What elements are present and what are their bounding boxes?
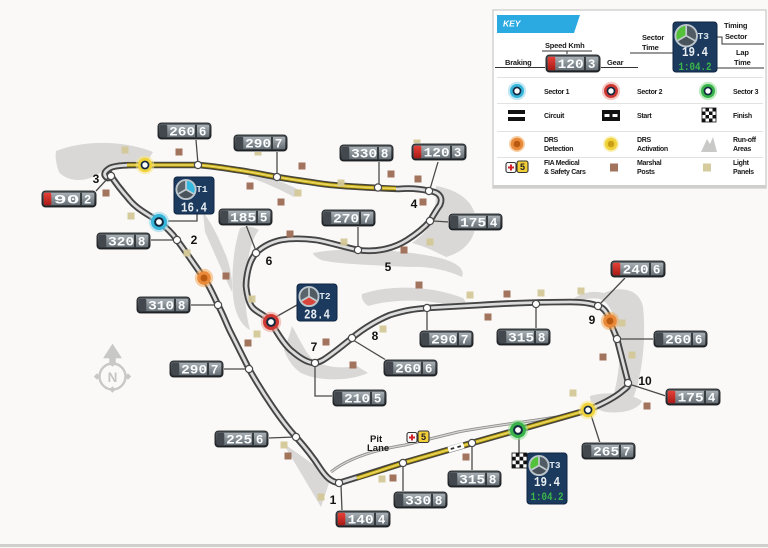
svg-text:6: 6 [256,433,264,447]
svg-text:4: 4 [411,197,418,211]
svg-text:7: 7 [461,333,469,347]
svg-text:7: 7 [211,363,219,377]
svg-text:Lap: Lap [736,48,749,57]
svg-text:225: 225 [226,433,252,447]
svg-text:260: 260 [395,362,421,376]
svg-text:& Safety Cars: & Safety Cars [544,169,586,176]
svg-text:1: 1 [330,493,337,507]
svg-text:3: 3 [588,58,596,72]
svg-text:4: 4 [378,513,386,527]
svg-text:320: 320 [108,235,134,249]
svg-text:5: 5 [421,432,426,442]
svg-text:175: 175 [678,391,704,405]
svg-text:Detection: Detection [544,146,573,153]
svg-text:6: 6 [425,362,433,376]
svg-text:265: 265 [593,445,619,459]
svg-text:Posts: Posts [637,169,655,176]
svg-text:210: 210 [344,392,370,406]
svg-text:8: 8 [489,473,497,487]
svg-text:8: 8 [178,299,186,313]
svg-text:1:04.2: 1:04.2 [531,492,564,504]
svg-text:315: 315 [508,331,534,345]
svg-text:2: 2 [84,193,92,207]
svg-text:290: 290 [431,333,457,347]
svg-text:Start: Start [637,113,652,120]
svg-text:T3: T3 [698,31,710,42]
svg-text:90: 90 [54,193,80,207]
svg-text:Sector: Sector [725,32,747,41]
svg-text:4: 4 [708,391,716,405]
svg-text:4: 4 [490,216,498,230]
svg-text:19.4: 19.4 [534,476,560,491]
svg-text:Sector: Sector [642,33,664,42]
svg-text:7: 7 [311,340,318,354]
svg-text:Braking: Braking [505,58,532,67]
svg-text:1:04.2: 1:04.2 [679,62,712,74]
svg-text:T1: T1 [196,184,208,195]
svg-text:Marshal: Marshal [637,160,662,167]
svg-text:8: 8 [381,147,389,161]
svg-text:DRS: DRS [544,137,559,144]
svg-text:290: 290 [181,363,207,377]
svg-text:T2: T2 [319,291,331,302]
svg-text:Gear: Gear [607,58,624,67]
svg-text:140: 140 [348,513,374,527]
svg-text:19.4: 19.4 [682,46,708,61]
svg-text:330: 330 [405,494,431,508]
svg-text:240: 240 [623,263,649,277]
svg-text:260: 260 [665,333,691,347]
svg-text:2: 2 [191,233,198,247]
svg-text:T3: T3 [549,460,561,471]
svg-text:7: 7 [363,212,371,226]
svg-text:Lane: Lane [367,443,389,454]
svg-text:16.4: 16.4 [181,202,207,217]
svg-text:7: 7 [623,445,631,459]
svg-text:Time: Time [642,43,659,52]
svg-text:6: 6 [653,263,661,277]
svg-text:Time: Time [734,58,751,67]
svg-text:Sector 1: Sector 1 [544,89,570,96]
svg-text:315: 315 [459,473,485,487]
svg-text:175: 175 [460,216,486,230]
svg-text:Circuit: Circuit [544,113,565,120]
svg-text:185: 185 [230,211,256,225]
svg-text:5: 5 [260,211,268,225]
svg-text:8: 8 [372,329,379,343]
svg-text:Sector 3: Sector 3 [733,89,759,96]
svg-text:Light: Light [733,160,750,167]
svg-text:10: 10 [638,374,652,388]
svg-text:6: 6 [199,125,207,139]
svg-text:KEY: KEY [503,19,522,29]
svg-text:120: 120 [424,146,450,160]
svg-text:DRS: DRS [637,137,652,144]
svg-text:120: 120 [558,58,584,72]
svg-text:Finish: Finish [733,113,752,120]
svg-text:5: 5 [520,162,525,172]
svg-text:N: N [108,370,118,385]
svg-text:Speed Kmh: Speed Kmh [545,41,585,50]
svg-text:310: 310 [148,299,174,313]
svg-text:FIA Medical: FIA Medical [544,160,580,167]
svg-text:5: 5 [385,260,392,274]
svg-text:3: 3 [454,146,462,160]
svg-text:330: 330 [351,147,377,161]
svg-text:290: 290 [245,137,271,151]
svg-text:7: 7 [275,137,283,151]
svg-text:6: 6 [695,333,703,347]
svg-text:8: 8 [538,331,546,345]
svg-text:Activation: Activation [637,146,668,153]
svg-text:3: 3 [93,172,100,186]
svg-text:8: 8 [138,235,146,249]
svg-text:Timing: Timing [724,21,748,30]
svg-text:9: 9 [589,313,596,327]
svg-text:5: 5 [374,392,382,406]
svg-text:260: 260 [169,125,195,139]
svg-text:28.4: 28.4 [304,309,330,324]
svg-text:8: 8 [435,494,443,508]
svg-text:6: 6 [266,254,273,268]
svg-text:270: 270 [333,212,359,226]
svg-text:Run-off: Run-off [733,137,757,144]
svg-text:Sector 2: Sector 2 [637,89,663,96]
svg-text:Areas: Areas [733,146,751,153]
svg-text:Panels: Panels [733,169,754,176]
